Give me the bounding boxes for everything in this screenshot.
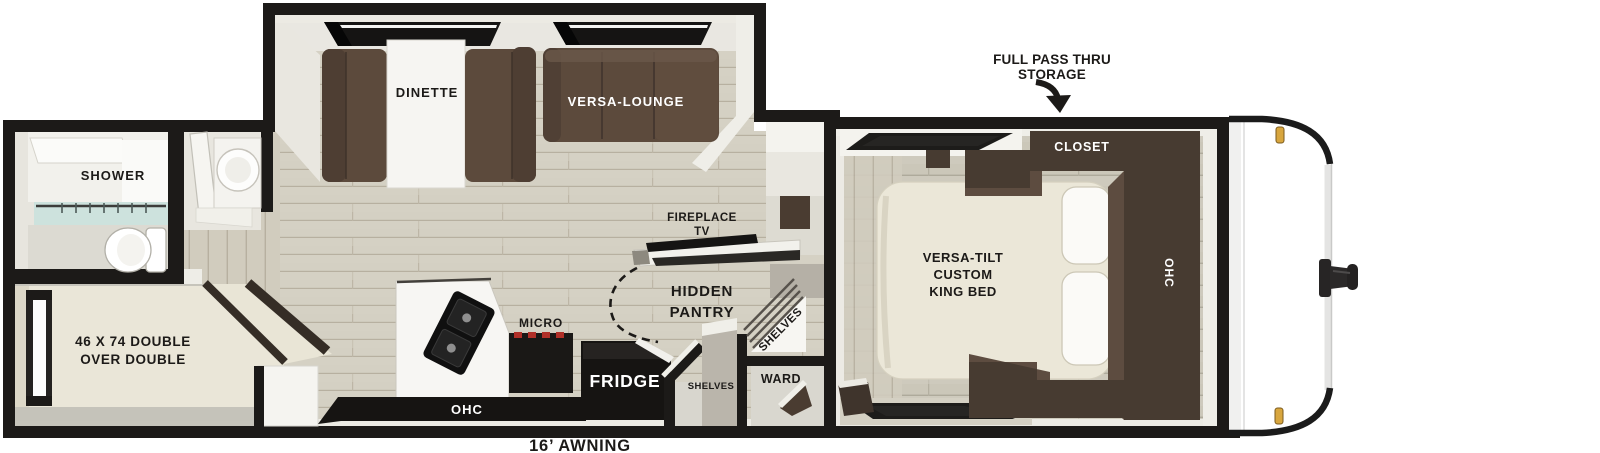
svg-text:KING BED: KING BED — [929, 284, 997, 299]
svg-text:DINETTE: DINETTE — [396, 85, 459, 100]
svg-text:FULL PASS THRU: FULL PASS THRU — [993, 52, 1111, 67]
svg-text:WARD: WARD — [761, 372, 801, 386]
svg-text:MICRO: MICRO — [519, 316, 563, 330]
svg-text:OHC: OHC — [1162, 258, 1176, 288]
svg-text:CUSTOM: CUSTOM — [933, 267, 992, 282]
svg-text:SHOWER: SHOWER — [81, 168, 146, 183]
svg-text:OHC: OHC — [451, 402, 483, 417]
svg-text:SHELVES: SHELVES — [688, 381, 734, 392]
svg-text:STORAGE: STORAGE — [1018, 67, 1086, 82]
svg-text:TV: TV — [694, 226, 710, 238]
svg-text:FRIDGE: FRIDGE — [590, 371, 661, 391]
svg-text:CLOSET: CLOSET — [1054, 140, 1110, 154]
svg-text:FIREPLACE: FIREPLACE — [667, 212, 737, 224]
svg-text:HIDDEN: HIDDEN — [671, 283, 733, 300]
svg-text:OVER DOUBLE: OVER DOUBLE — [80, 352, 186, 367]
svg-text:VERSA-LOUNGE: VERSA-LOUNGE — [568, 94, 685, 109]
svg-text:VERSA-TILT: VERSA-TILT — [923, 250, 1004, 265]
svg-text:PANTRY: PANTRY — [670, 304, 735, 321]
svg-text:16’ AWNING: 16’ AWNING — [529, 437, 631, 453]
svg-text:46 X 74 DOUBLE: 46 X 74 DOUBLE — [75, 334, 191, 349]
